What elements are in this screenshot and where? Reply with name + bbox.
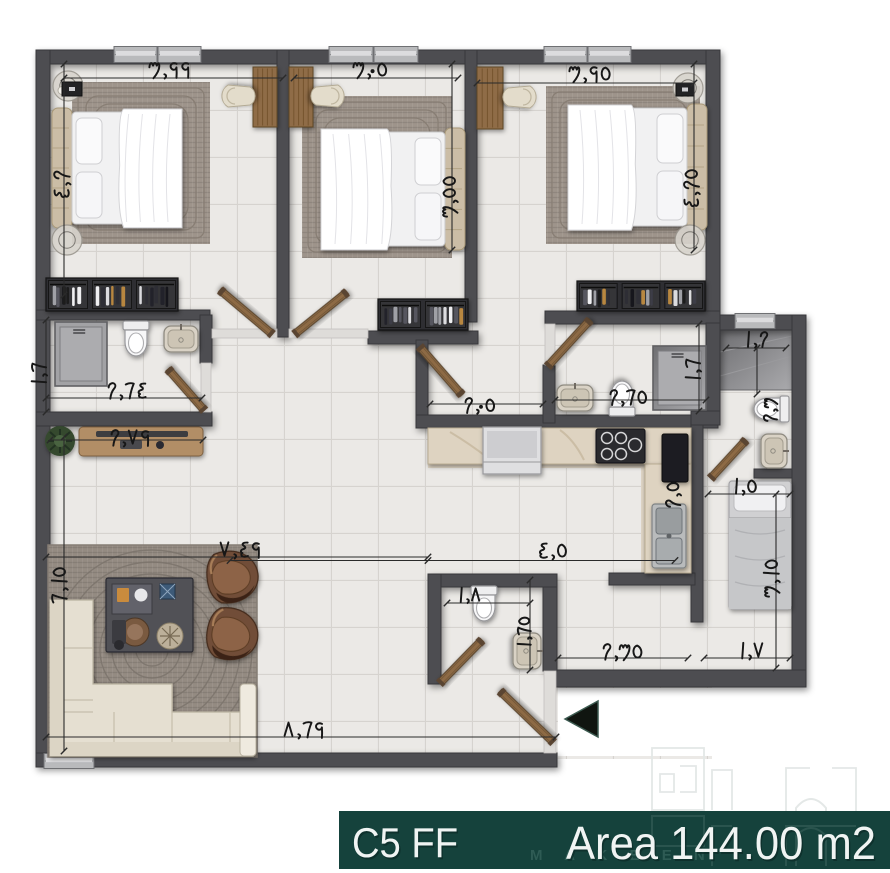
svg-text:C5 FF: C5 FF: [352, 819, 458, 866]
svg-text:Area 144.00 m2: Area 144.00 m2: [566, 817, 876, 869]
